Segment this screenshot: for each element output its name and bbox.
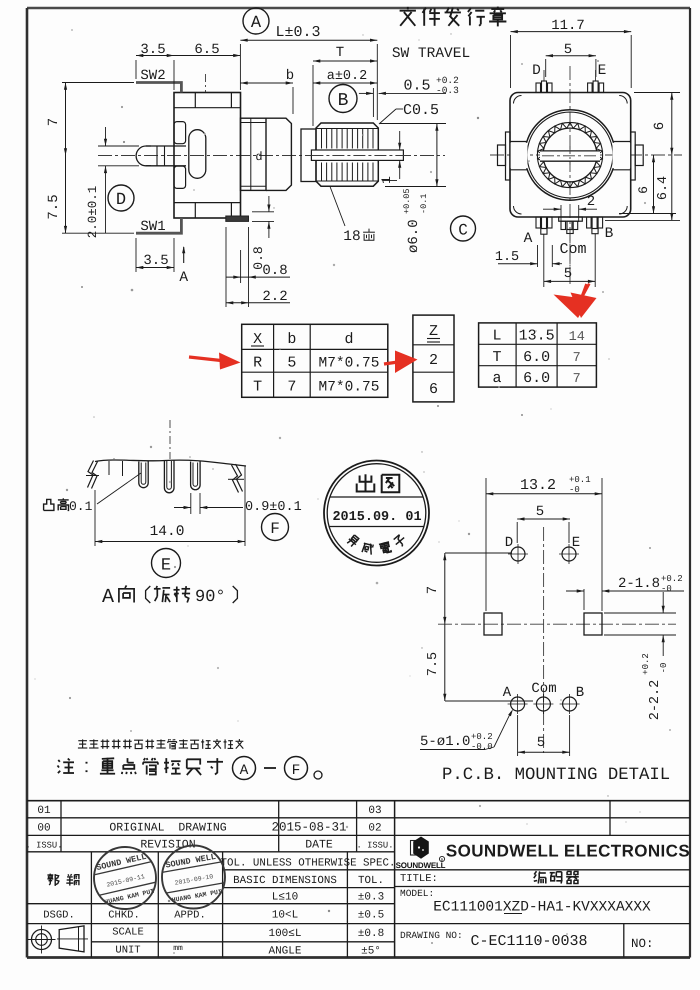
svg-text:T: T bbox=[336, 45, 344, 61]
svg-text:±0.8: ±0.8 bbox=[358, 928, 384, 940]
svg-text:a±0.2: a±0.2 bbox=[327, 69, 368, 84]
svg-text:2: 2 bbox=[587, 194, 595, 210]
svg-text:A: A bbox=[524, 231, 533, 247]
svg-text:2: 2 bbox=[429, 352, 438, 369]
svg-text:NO:: NO: bbox=[631, 937, 654, 951]
svg-text:. ISSU.: . ISSU. bbox=[357, 841, 394, 851]
svg-text:7: 7 bbox=[425, 586, 441, 594]
svg-text:2-1.8: 2-1.8 bbox=[618, 576, 660, 592]
svg-text:DRAWING NO:: DRAWING NO: bbox=[400, 930, 463, 941]
svg-text:ORIGINAL DRAWING: ORIGINAL DRAWING bbox=[109, 822, 226, 835]
svg-text:6.0: 6.0 bbox=[523, 349, 550, 366]
svg-text:7: 7 bbox=[287, 379, 296, 396]
svg-text:5: 5 bbox=[536, 504, 544, 520]
svg-text:B: B bbox=[338, 91, 349, 111]
svg-text:Com: Com bbox=[559, 241, 586, 258]
svg-text:BASIC DIMENSIONS: BASIC DIMENSIONS bbox=[233, 875, 337, 887]
svg-text:+0.2: +0.2 bbox=[641, 653, 651, 675]
svg-text:7.5: 7.5 bbox=[426, 652, 441, 676]
svg-text:F: F bbox=[292, 763, 301, 779]
svg-text:14.0: 14.0 bbox=[150, 524, 185, 540]
svg-text:±5°: ±5° bbox=[361, 946, 381, 958]
svg-text:0.9±0.1: 0.9±0.1 bbox=[245, 500, 302, 515]
svg-text:ANGLE: ANGLE bbox=[268, 946, 301, 958]
svg-text:b: b bbox=[286, 68, 294, 84]
svg-text:+0.1: +0.1 bbox=[569, 475, 591, 485]
svg-text:P.C.B. MOUNTING DETAIL: P.C.B. MOUNTING DETAIL bbox=[442, 766, 670, 785]
svg-text:0.5: 0.5 bbox=[403, 78, 430, 95]
svg-text:±0.5: ±0.5 bbox=[358, 910, 384, 922]
svg-text:±0.3: ±0.3 bbox=[358, 892, 384, 904]
svg-text:+0.2: +0.2 bbox=[471, 732, 493, 742]
svg-text:F: F bbox=[270, 520, 280, 538]
svg-text:-0: -0 bbox=[661, 584, 672, 594]
svg-text:L±0.3: L±0.3 bbox=[275, 24, 320, 41]
svg-text:6: 6 bbox=[636, 186, 651, 194]
svg-text:T: T bbox=[492, 349, 501, 366]
svg-text:6.0: 6.0 bbox=[523, 370, 550, 387]
svg-text:L: L bbox=[492, 328, 501, 345]
svg-text:CHKD.: CHKD. bbox=[108, 910, 140, 922]
svg-text:02: 02 bbox=[368, 823, 381, 835]
svg-text:R: R bbox=[441, 858, 444, 863]
svg-text:L≤10: L≤10 bbox=[272, 892, 298, 904]
svg-text:03: 03 bbox=[368, 805, 381, 817]
svg-text:d: d bbox=[344, 331, 353, 348]
svg-text:C-EC1110-0038: C-EC1110-0038 bbox=[470, 933, 587, 950]
svg-text:5-ø1.0: 5-ø1.0 bbox=[420, 734, 470, 750]
svg-text:6: 6 bbox=[429, 381, 438, 398]
svg-text:D: D bbox=[532, 63, 541, 79]
svg-text:+0.2: +0.2 bbox=[661, 574, 683, 584]
svg-text:TOL. UNLESS OTHERWISE SPEC.: TOL. UNLESS OTHERWISE SPEC. bbox=[221, 858, 396, 870]
svg-text:E: E bbox=[598, 63, 607, 79]
svg-text:C0.5: C0.5 bbox=[403, 102, 439, 119]
svg-text:5: 5 bbox=[287, 355, 296, 372]
svg-text:R: R bbox=[253, 355, 262, 372]
svg-text:1: 1 bbox=[379, 176, 394, 184]
svg-text:SW TRAVEL: SW TRAVEL bbox=[392, 46, 470, 62]
svg-text:C: C bbox=[458, 222, 468, 240]
svg-text:00: 00 bbox=[37, 823, 50, 835]
svg-text:SOUNDWELL: SOUNDWELL bbox=[396, 861, 446, 870]
svg-text:M7*0.75: M7*0.75 bbox=[319, 380, 380, 396]
svg-text:10<L: 10<L bbox=[272, 910, 298, 922]
svg-text:A: A bbox=[102, 586, 114, 609]
svg-text:B: B bbox=[605, 226, 614, 242]
svg-text:A: A bbox=[251, 14, 262, 33]
svg-text:2015.09. 01: 2015.09. 01 bbox=[332, 510, 421, 525]
svg-text:7: 7 bbox=[573, 372, 581, 387]
svg-text:E: E bbox=[572, 535, 580, 551]
svg-text:MODEL:: MODEL: bbox=[400, 888, 434, 899]
svg-text:18: 18 bbox=[343, 229, 360, 245]
svg-text:7: 7 bbox=[46, 118, 62, 126]
svg-text:UNIT: UNIT bbox=[115, 945, 140, 957]
svg-text:6: 6 bbox=[652, 122, 668, 130]
svg-text:3.5: 3.5 bbox=[143, 253, 168, 269]
svg-text:EC111001XZD-HA1-KVXXXAXXX: EC111001XZD-HA1-KVXXXAXXX bbox=[433, 900, 651, 916]
svg-text:M7*0.75: M7*0.75 bbox=[319, 356, 380, 372]
svg-text:mm: mm bbox=[173, 944, 183, 953]
svg-text:DSGD.: DSGD. bbox=[43, 910, 75, 922]
svg-text:7: 7 bbox=[573, 351, 581, 366]
svg-text:. ISSU.: . ISSU. bbox=[26, 841, 63, 851]
svg-text:DATE: DATE bbox=[305, 839, 333, 852]
svg-text:7.5: 7.5 bbox=[46, 194, 62, 219]
svg-text:TITLE:: TITLE: bbox=[400, 873, 438, 885]
svg-text:2.0±0.1: 2.0±0.1 bbox=[86, 186, 100, 239]
svg-text:TOL.: TOL. bbox=[358, 875, 384, 887]
svg-text:APPD.: APPD. bbox=[174, 910, 206, 922]
svg-text:13.5: 13.5 bbox=[519, 328, 555, 345]
svg-text:0.1: 0.1 bbox=[69, 499, 93, 514]
svg-text:SW1: SW1 bbox=[140, 219, 165, 235]
svg-text:a: a bbox=[492, 370, 501, 387]
svg-text:SW2: SW2 bbox=[140, 68, 165, 84]
svg-text:100≤L: 100≤L bbox=[268, 928, 301, 940]
svg-text:A: A bbox=[503, 685, 512, 701]
svg-text:T: T bbox=[253, 379, 262, 396]
svg-text:B: B bbox=[576, 685, 584, 701]
svg-text:SCALE: SCALE bbox=[112, 927, 144, 939]
svg-text:A: A bbox=[179, 270, 188, 286]
svg-text:2015-09-10: 2015-09-10 bbox=[174, 873, 214, 887]
svg-text:90°: 90° bbox=[195, 588, 226, 607]
svg-text:13.2: 13.2 bbox=[520, 477, 556, 494]
svg-text:5: 5 bbox=[537, 735, 545, 751]
svg-text:+0.05: +0.05 bbox=[402, 188, 412, 214]
svg-text:A: A bbox=[240, 763, 249, 779]
svg-text:-0: -0 bbox=[659, 663, 669, 674]
svg-text:E: E bbox=[161, 557, 171, 576]
svg-text:1.5: 1.5 bbox=[495, 250, 519, 265]
svg-text:Z: Z bbox=[429, 323, 438, 340]
svg-text:-0.3: -0.3 bbox=[436, 85, 459, 96]
svg-text:SOUNDWELL ELECTRONICS: SOUNDWELL ELECTRONICS bbox=[446, 842, 690, 861]
svg-text:D: D bbox=[116, 191, 126, 210]
svg-text:Com: Com bbox=[531, 681, 556, 697]
svg-text:2-2.2: 2-2.2 bbox=[648, 680, 663, 721]
svg-text:2015-08-31: 2015-08-31 bbox=[271, 821, 346, 835]
svg-text:REVISION: REVISION bbox=[140, 839, 195, 852]
svg-text:D: D bbox=[505, 535, 513, 551]
svg-text:ø6.0: ø6.0 bbox=[406, 219, 422, 253]
svg-text:-0.1: -0.1 bbox=[419, 194, 429, 214]
svg-text:5: 5 bbox=[564, 266, 572, 282]
svg-text:-0.0: -0.0 bbox=[471, 742, 493, 752]
svg-text:b: b bbox=[287, 331, 296, 348]
svg-text:d: d bbox=[255, 150, 262, 164]
svg-text:6.4: 6.4 bbox=[656, 176, 671, 200]
svg-text:14: 14 bbox=[569, 330, 585, 345]
svg-text:01: 01 bbox=[37, 805, 51, 817]
